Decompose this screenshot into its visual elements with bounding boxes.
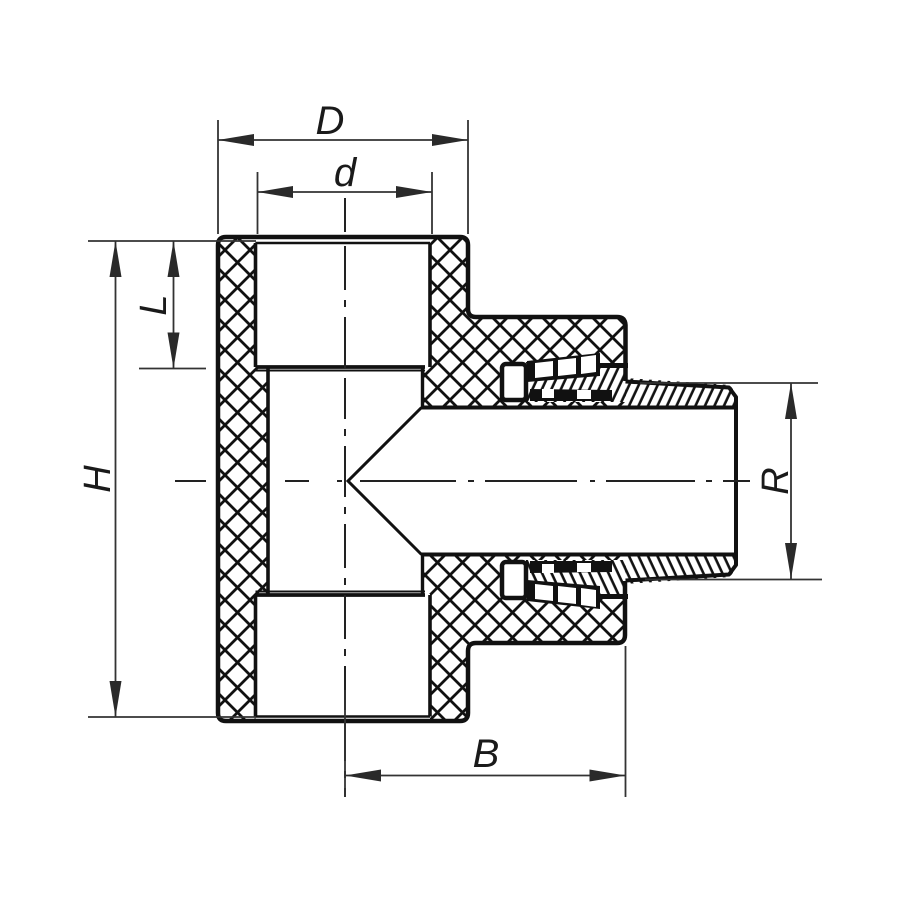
svg-text:H: H (77, 465, 119, 493)
svg-text:d: d (334, 151, 358, 195)
svg-text:B: B (473, 732, 500, 776)
svg-text:R: R (755, 467, 797, 494)
svg-text:D: D (316, 99, 345, 143)
svg-text:L: L (133, 294, 175, 315)
